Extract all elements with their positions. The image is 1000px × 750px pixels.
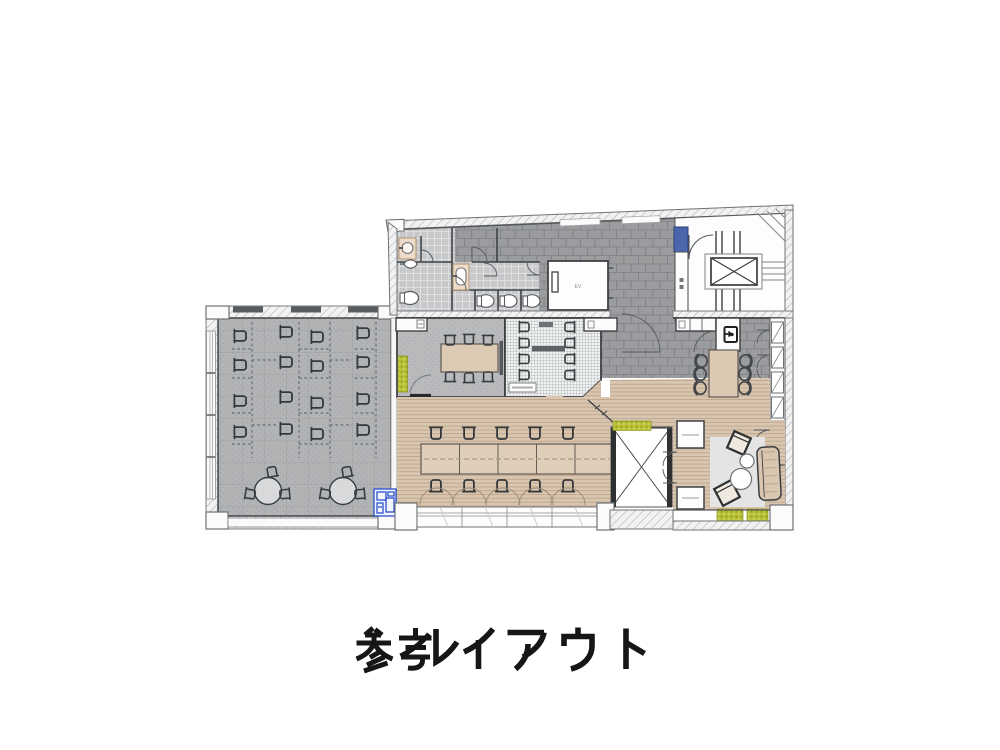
- svg-text:EV: EV: [575, 284, 582, 290]
